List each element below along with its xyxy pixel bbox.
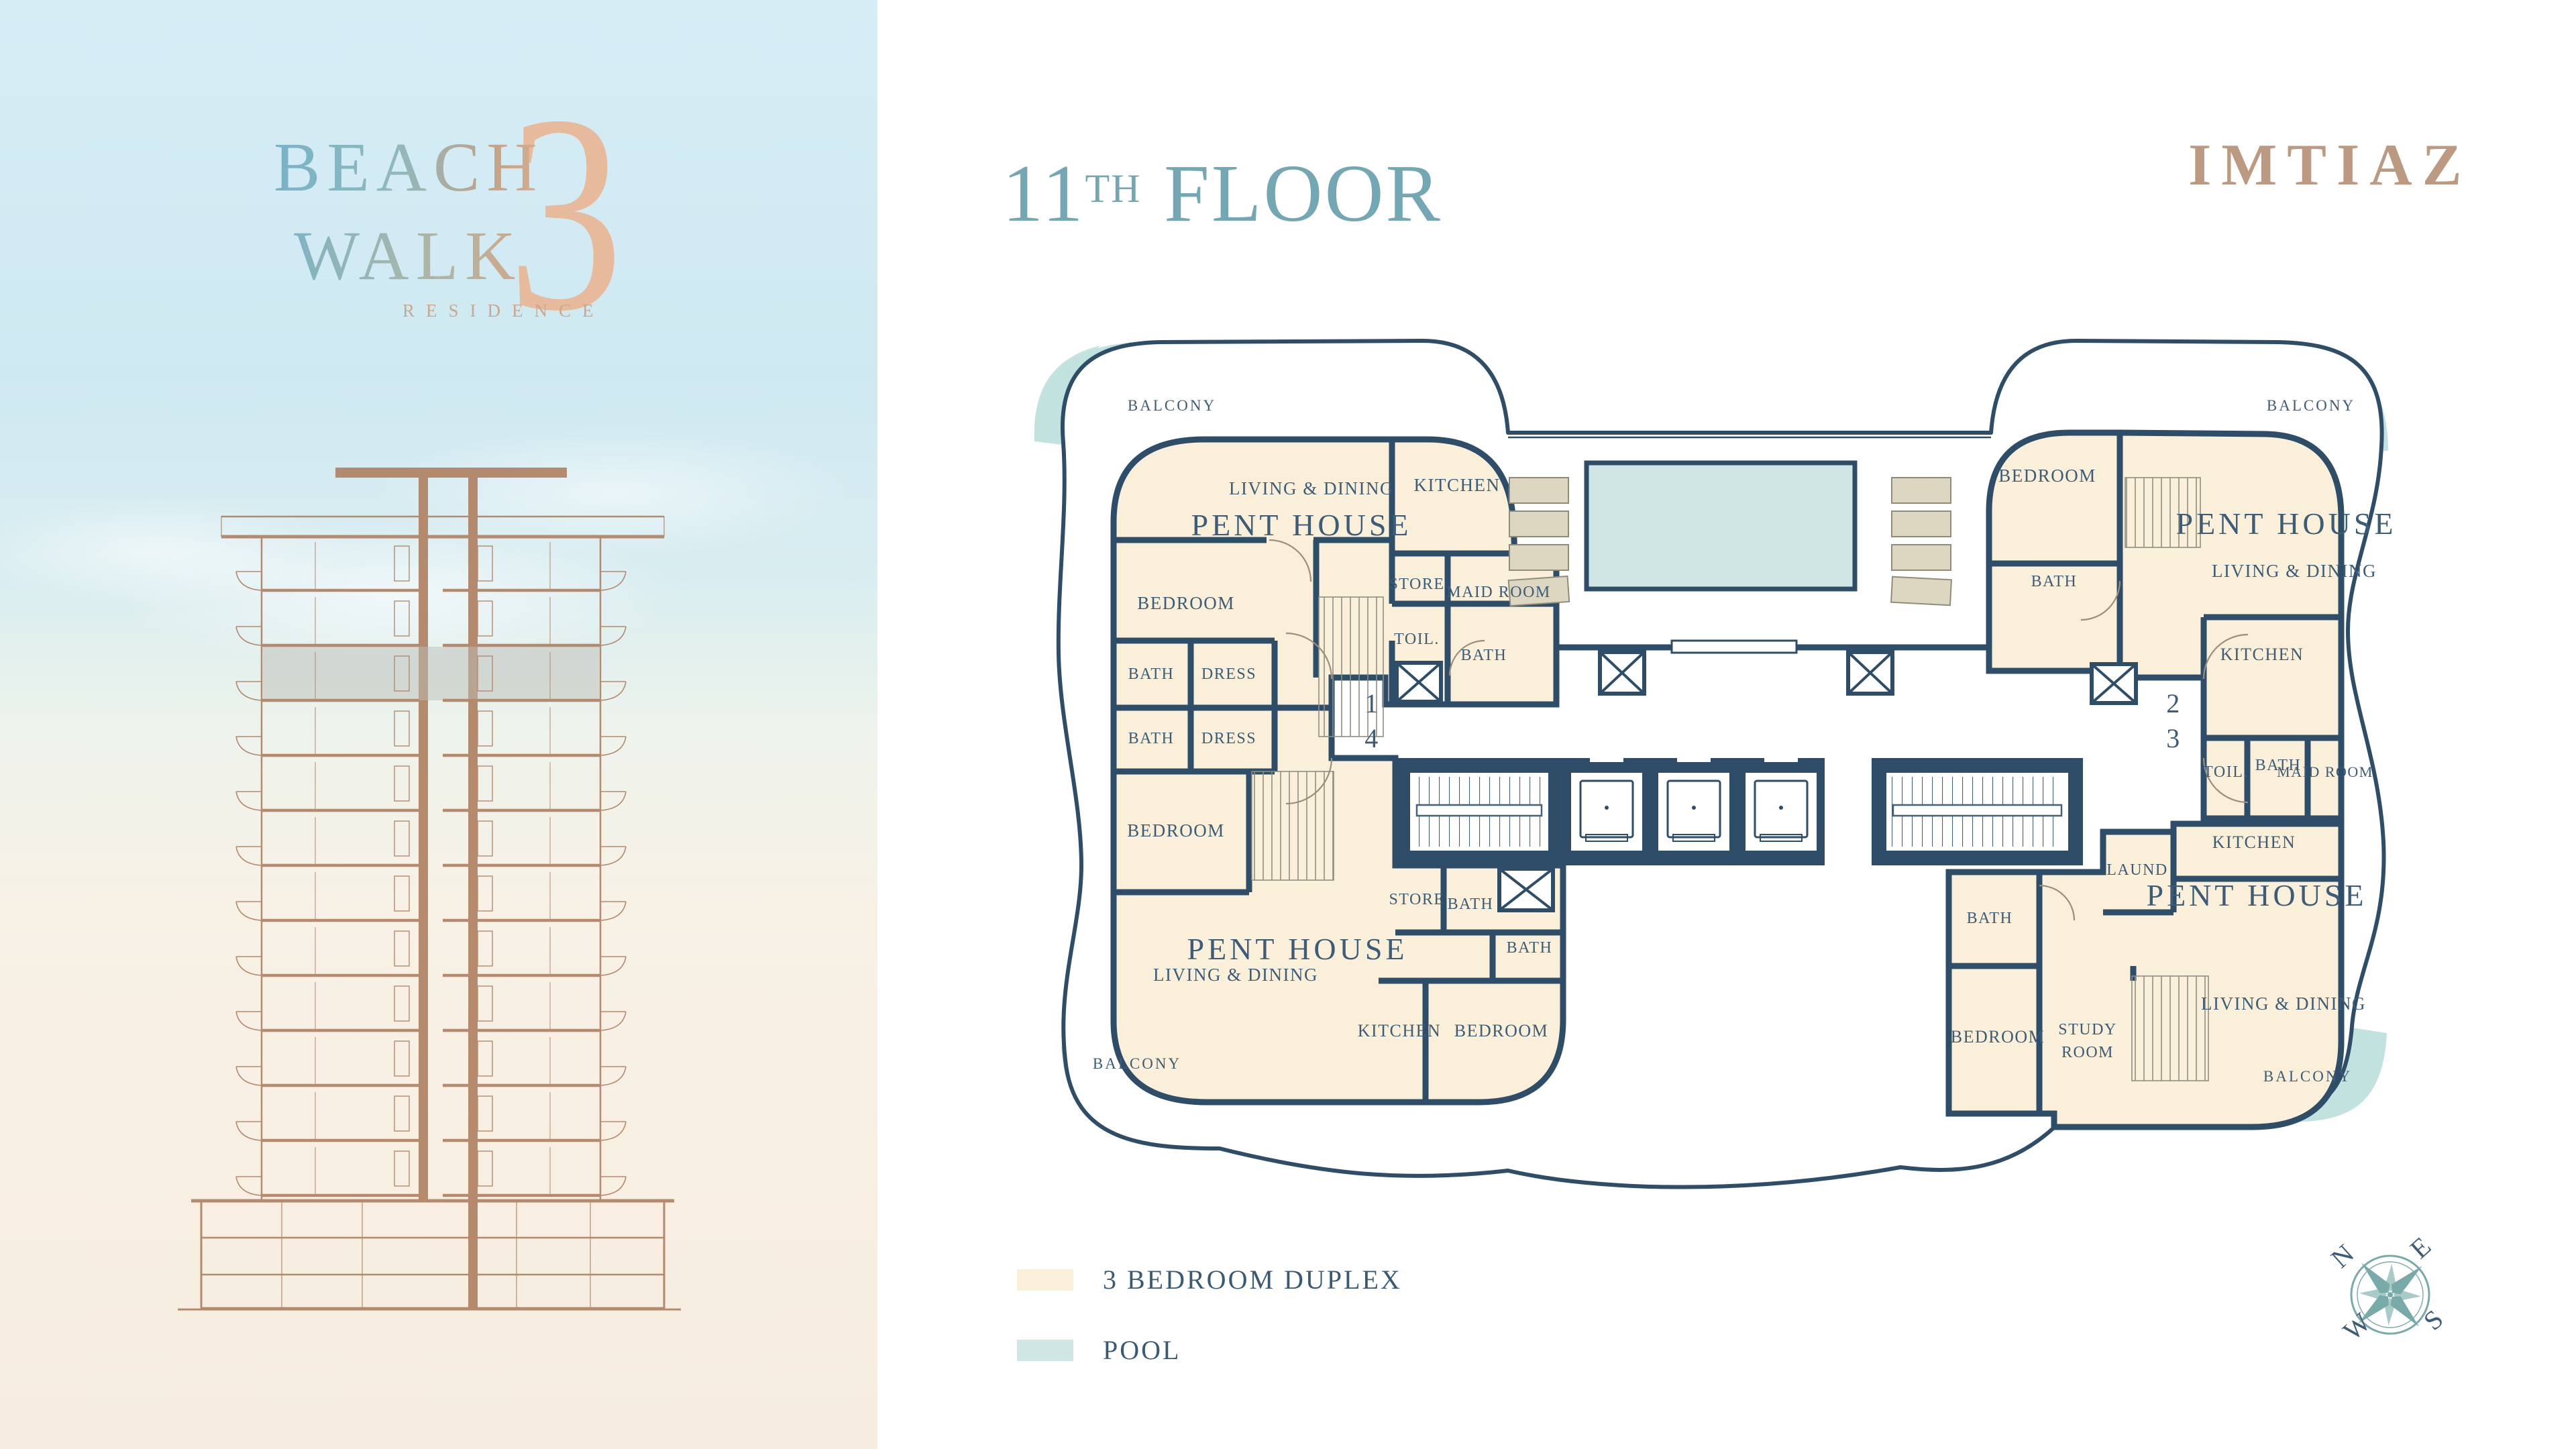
floor-number: 11 xyxy=(1002,148,1085,239)
room-label: MAID ROOM xyxy=(1446,584,1551,601)
room-label: BATH xyxy=(2031,573,2078,590)
room-label: LAUND xyxy=(2106,861,2168,879)
compass-s: S xyxy=(2418,1303,2449,1336)
room-label: BATH xyxy=(1507,939,1553,957)
legend-item-duplex: 3 BEDROOM DUPLEX xyxy=(1017,1264,1402,1295)
room-label: PENT HOUSE xyxy=(1187,932,1407,966)
compass-e: E xyxy=(2404,1231,2436,1265)
room-label: LIVING & DINING xyxy=(1153,965,1318,985)
balcony-label: BALCONY xyxy=(1128,397,1216,414)
room-label: BEDROOM xyxy=(1127,820,1225,841)
room-label: PENT HOUSE xyxy=(1191,508,1411,542)
room-label: LIVING & DINING xyxy=(1229,478,1394,498)
room-label: DRESS xyxy=(1201,730,1256,747)
building-elevation-drawing xyxy=(178,468,681,1309)
unit-number: 2 xyxy=(2166,688,2181,718)
room-label: KITCHEN xyxy=(2220,645,2304,664)
page-title: 11TH FLOOR xyxy=(1002,153,1442,235)
floor-plan xyxy=(1034,341,2388,1187)
legend-item-pool: POOL xyxy=(1017,1334,1402,1366)
room-label: STORE xyxy=(1389,576,1444,593)
room-label: BATH xyxy=(1448,896,1494,913)
balcony-label: BALCONY xyxy=(1093,1055,1181,1072)
room-label: PENT HOUSE xyxy=(2146,878,2367,912)
room-label: STORE xyxy=(1389,891,1444,908)
floor-suffix: TH xyxy=(1085,166,1141,211)
deck-rail xyxy=(1672,641,1796,653)
room-label: TOIL. xyxy=(2203,763,2249,781)
room-label: KITCHEN xyxy=(1358,1021,1442,1040)
room-label: BEDROOM xyxy=(1137,593,1235,613)
balcony-label: BALCONY xyxy=(2267,397,2355,414)
balcony-label: BALCONY xyxy=(2263,1068,2352,1085)
room-label: PENT HOUSE xyxy=(2176,506,2396,541)
room-label: BATH xyxy=(1128,730,1175,747)
room-label: TOIL. xyxy=(1394,631,1440,648)
legend-label-pool: POOL xyxy=(1103,1334,1181,1366)
pool xyxy=(1587,463,1855,589)
page: 3 BEACH WALK RESIDENCE xyxy=(0,0,2576,1449)
legend: 3 BEDROOM DUPLEX POOL xyxy=(1017,1264,1402,1405)
room-label: KITCHEN xyxy=(1414,475,1501,495)
developer-logo: IMTIAZ xyxy=(2188,131,2472,199)
core xyxy=(1395,754,2083,865)
legend-swatch-duplex xyxy=(1017,1269,1073,1291)
room-label: DRESS xyxy=(1201,665,1256,683)
room-label: LIVING & DINING xyxy=(2201,994,2366,1014)
unit-number: 3 xyxy=(2166,723,2181,753)
floor-word: FLOOR xyxy=(1141,148,1442,239)
room-label: STUDY xyxy=(2058,1021,2117,1038)
compass-n: N xyxy=(2325,1238,2360,1274)
room-label: BATH xyxy=(1128,665,1175,683)
room-label: BATH xyxy=(1967,910,2013,927)
unit-number: 4 xyxy=(1364,723,1379,753)
room-label: LIVING & DINING xyxy=(2212,561,2377,581)
room-label: BATH xyxy=(1461,647,1507,664)
room-label: KITCHEN xyxy=(2212,833,2296,852)
room-label: BEDROOM xyxy=(1998,466,2096,486)
legend-swatch-pool xyxy=(1017,1340,1073,1361)
room-label: BEDROOM xyxy=(1951,1027,2045,1046)
room-label: MAID ROOM xyxy=(2277,763,2373,780)
unit-number: 1 xyxy=(1364,688,1379,718)
compass-rose: N E W S xyxy=(2325,1231,2451,1355)
core-corridor-gap xyxy=(1826,759,1870,865)
room-label: ROOM xyxy=(2061,1044,2114,1061)
room-label: BEDROOM xyxy=(1454,1021,1549,1040)
legend-label-duplex: 3 BEDROOM DUPLEX xyxy=(1103,1264,1402,1295)
